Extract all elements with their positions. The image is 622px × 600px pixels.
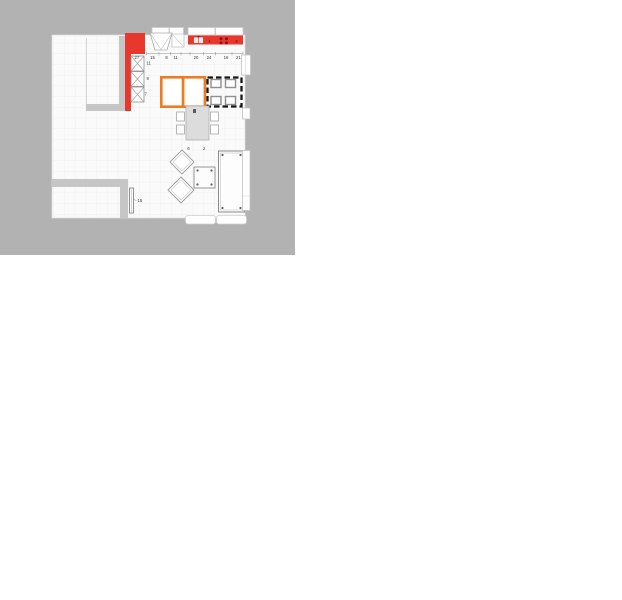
orange-table-right[interactable] bbox=[183, 77, 205, 106]
orange-table-left[interactable] bbox=[161, 77, 183, 106]
wall-cabinet bbox=[188, 28, 215, 36]
wall-cabinet bbox=[216, 28, 244, 36]
chair[interactable] bbox=[211, 125, 219, 134]
stool[interactable] bbox=[211, 80, 221, 88]
selected-tables-orange[interactable] bbox=[161, 77, 205, 106]
tall-cabinet-red bbox=[125, 33, 145, 54]
counter-mark-label: 8 bbox=[236, 39, 238, 43]
sink-icon bbox=[194, 36, 204, 44]
stool[interactable] bbox=[211, 97, 221, 105]
wall-lower-horizontal bbox=[52, 179, 128, 187]
dim-label: 16 bbox=[224, 55, 229, 60]
table-decor-mark bbox=[193, 109, 196, 113]
floorplan-canvas: 4 8 27 11 9 7 15 8 11 20 24 16 21 bbox=[0, 0, 622, 600]
window-sill bbox=[186, 216, 216, 225]
chair[interactable] bbox=[177, 112, 185, 121]
chair[interactable] bbox=[177, 125, 185, 134]
dim-label: 11 bbox=[173, 55, 178, 60]
sofa[interactable] bbox=[219, 151, 245, 212]
stool[interactable] bbox=[226, 97, 236, 105]
dim-label: 15 bbox=[150, 55, 155, 60]
counter-mark-label: 4 bbox=[209, 39, 211, 43]
chair[interactable] bbox=[211, 112, 219, 121]
dim-label: 21 bbox=[236, 55, 241, 60]
wall-corridor-bottom bbox=[86, 104, 128, 111]
cabinet-dim-label: 27 bbox=[135, 55, 140, 60]
floorplan-svg: 4 8 27 11 9 7 15 8 11 20 24 16 21 bbox=[0, 0, 622, 600]
window bbox=[243, 151, 251, 211]
dim-label: 20 bbox=[194, 55, 199, 60]
radiator-dim-label: 15 bbox=[138, 198, 143, 203]
window bbox=[243, 108, 251, 119]
stool[interactable] bbox=[226, 80, 236, 88]
dining-table[interactable] bbox=[186, 106, 209, 140]
dim-label: 24 bbox=[207, 55, 212, 60]
cabinet-dim-label: 11 bbox=[147, 61, 152, 66]
window bbox=[242, 55, 251, 75]
window-sill bbox=[217, 216, 247, 225]
wall-lower-vertical bbox=[120, 187, 128, 218]
counter-strip-left-red bbox=[125, 54, 131, 111]
